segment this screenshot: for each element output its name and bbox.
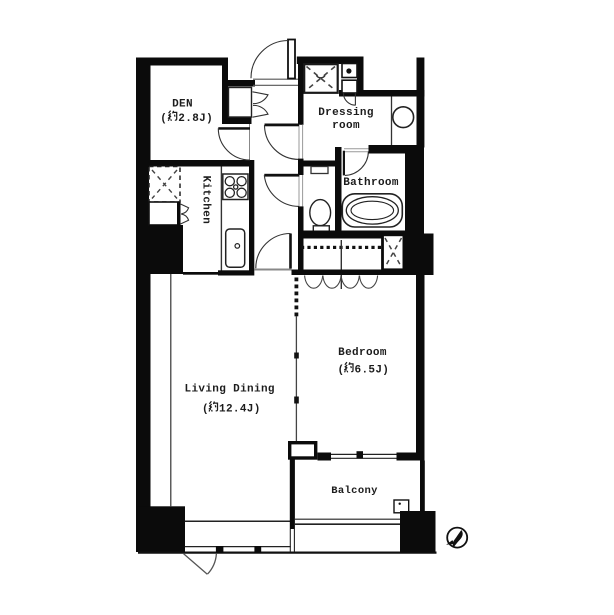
- svg-text:Bathroom: Bathroom: [343, 177, 399, 189]
- svg-text:Balcony: Balcony: [331, 485, 378, 497]
- svg-text:6.5J): 6.5J): [355, 364, 390, 376]
- svg-text:Bedroom: Bedroom: [338, 347, 387, 359]
- svg-text:Kitchen: Kitchen: [200, 176, 212, 225]
- svg-text:2.8J): 2.8J): [178, 113, 213, 125]
- svg-text:12.4J): 12.4J): [219, 404, 261, 416]
- svg-text:DEN: DEN: [172, 99, 193, 111]
- svg-text:Dressing: Dressing: [318, 107, 374, 119]
- svg-text:Living Dining: Living Dining: [185, 384, 275, 396]
- svg-text:(: (: [160, 113, 167, 125]
- svg-text:room: room: [332, 120, 360, 132]
- svg-text:(: (: [338, 364, 345, 376]
- svg-text:(: (: [202, 404, 209, 416]
